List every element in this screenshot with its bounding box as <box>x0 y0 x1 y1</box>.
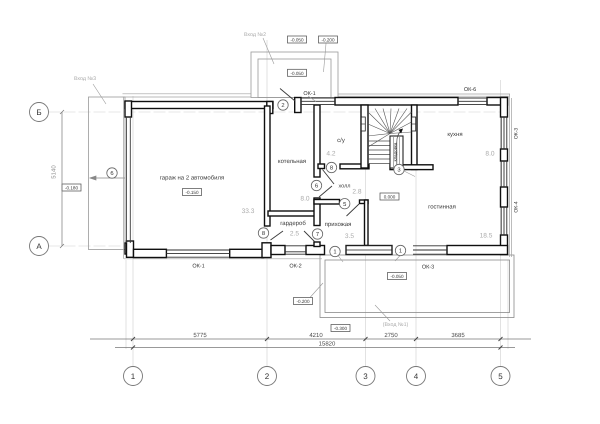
svg-text:прихожая: прихожая <box>325 222 352 228</box>
svg-text:3685: 3685 <box>451 332 465 339</box>
svg-text:5140: 5140 <box>51 165 58 179</box>
svg-text:Вход №3: Вход №3 <box>74 76 96 82</box>
svg-text:5: 5 <box>343 202 346 208</box>
svg-text:ОК-2: ОК-2 <box>289 264 301 270</box>
svg-text:2: 2 <box>265 372 270 381</box>
svg-text:-0.050: -0.050 <box>290 71 303 76</box>
svg-text:(Вход №1): (Вход №1) <box>383 322 409 328</box>
svg-text:2750: 2750 <box>384 332 398 339</box>
svg-text:2: 2 <box>281 102 284 109</box>
svg-text:7: 7 <box>316 232 319 238</box>
svg-text:ОК-6: ОК-6 <box>464 87 476 93</box>
svg-text:гардероб: гардероб <box>280 220 306 227</box>
svg-text:2.5: 2.5 <box>290 231 299 238</box>
svg-text:-0.200: -0.200 <box>321 38 334 43</box>
svg-text:ОК-1: ОК-1 <box>303 91 315 97</box>
svg-text:15820: 15820 <box>319 341 336 348</box>
svg-text:1: 1 <box>333 250 336 256</box>
svg-text:с/у: с/у <box>337 137 345 144</box>
svg-text:3.5: 3.5 <box>345 233 354 240</box>
svg-text:1: 1 <box>399 249 402 255</box>
svg-text:ОК-1: ОК-1 <box>192 264 204 270</box>
svg-text:33.3: 33.3 <box>242 208 255 215</box>
svg-text:кухня: кухня <box>447 132 462 138</box>
svg-text:6: 6 <box>315 183 318 190</box>
svg-text:-0.050: -0.050 <box>290 38 303 43</box>
svg-text:Вход №2: Вход №2 <box>244 32 266 38</box>
svg-text:4210: 4210 <box>309 332 323 339</box>
svg-text:6: 6 <box>110 170 113 177</box>
svg-text:А: А <box>36 242 42 251</box>
svg-text:5: 5 <box>498 372 503 381</box>
svg-text:3: 3 <box>363 372 368 381</box>
svg-text:5775: 5775 <box>193 332 207 339</box>
svg-text:гараж на 2 автомобиля: гараж на 2 автомобиля <box>160 175 224 182</box>
svg-text:-0.050: -0.050 <box>390 274 403 279</box>
svg-text:2.8: 2.8 <box>352 189 361 196</box>
svg-text:-0.200: -0.200 <box>296 299 309 304</box>
svg-text:котельная: котельная <box>278 159 306 165</box>
svg-text:ОК-4: ОК-4 <box>514 201 520 212</box>
svg-text:8: 8 <box>262 230 265 237</box>
svg-text:4: 4 <box>414 372 419 381</box>
svg-text:гостинная: гостинная <box>428 205 456 211</box>
svg-text:-0.150: -0.150 <box>185 190 198 195</box>
svg-text:18.5: 18.5 <box>480 233 493 240</box>
svg-text:8.0: 8.0 <box>300 196 309 203</box>
svg-text:ОК-3: ОК-3 <box>422 265 434 271</box>
svg-text:-0.180: -0.180 <box>65 186 78 191</box>
svg-text:4.2: 4.2 <box>326 151 335 158</box>
svg-text:ОК-3: ОК-3 <box>514 128 520 139</box>
svg-text:Б: Б <box>36 108 41 117</box>
svg-text:3: 3 <box>397 167 400 174</box>
svg-text:-0.300: -0.300 <box>334 326 347 331</box>
svg-text:1: 1 <box>131 372 136 381</box>
svg-text:0.000: 0.000 <box>384 195 396 200</box>
svg-text:8.0: 8.0 <box>485 151 494 158</box>
svg-text:8: 8 <box>330 165 333 172</box>
svg-text:холл: холл <box>338 184 350 190</box>
